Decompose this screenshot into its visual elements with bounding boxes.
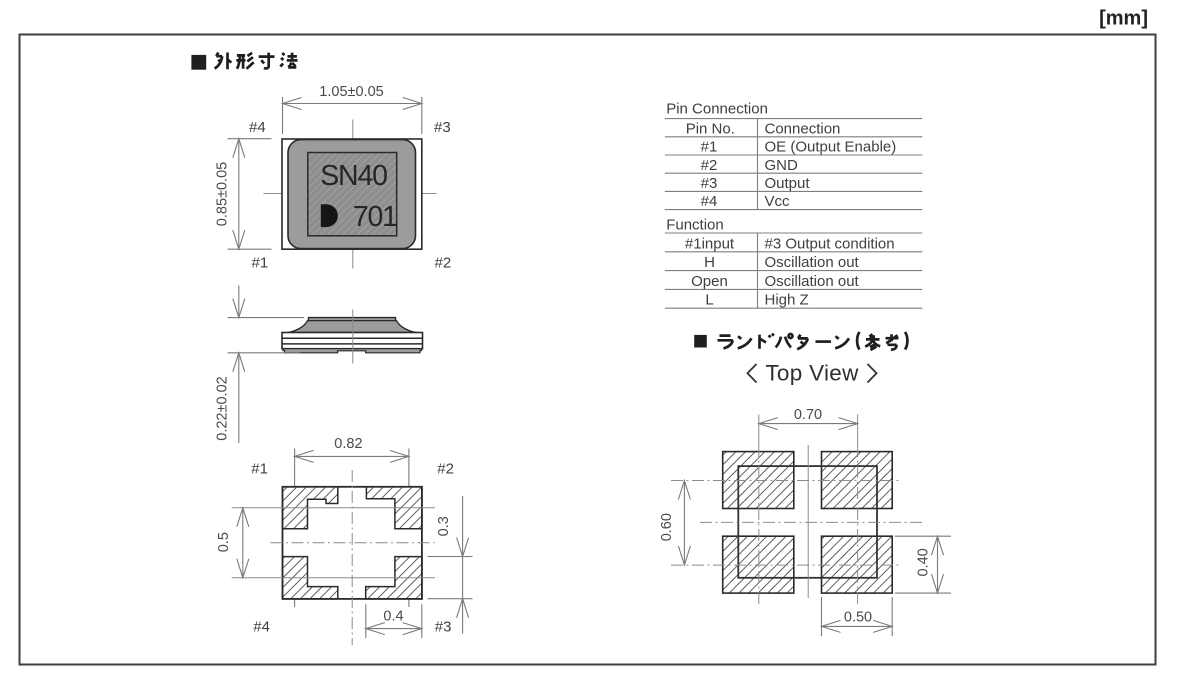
svg-text:#1input: #1input	[685, 235, 735, 252]
svg-text:#1: #1	[252, 255, 269, 272]
svg-text:0.70: 0.70	[794, 407, 822, 423]
svg-text:Oscillation out: Oscillation out	[765, 273, 860, 290]
svg-text:[mm]: [mm]	[1099, 8, 1148, 30]
svg-text:0.22±0.02: 0.22±0.02	[215, 376, 231, 440]
svg-text:0.60: 0.60	[659, 513, 675, 541]
svg-text:#2: #2	[435, 255, 452, 272]
svg-text:Open: Open	[691, 273, 728, 290]
svg-text:#3: #3	[701, 175, 718, 192]
svg-text:1.05±0.05: 1.05±0.05	[319, 84, 383, 100]
svg-text:#2: #2	[701, 157, 718, 174]
svg-text:Top View: Top View	[765, 361, 859, 386]
svg-text:0.85±0.05: 0.85±0.05	[215, 162, 231, 226]
svg-text:#4: #4	[701, 193, 718, 210]
svg-text:0.50: 0.50	[844, 610, 872, 626]
svg-text:SN40: SN40	[320, 160, 387, 192]
svg-text:#2: #2	[437, 460, 454, 477]
svg-text:#4: #4	[249, 119, 266, 136]
svg-text:0.82: 0.82	[334, 436, 362, 452]
svg-text:Connection: Connection	[765, 120, 841, 137]
svg-text:GND: GND	[765, 157, 799, 174]
svg-text:High Z: High Z	[765, 292, 809, 309]
svg-text:OE (Output Enable): OE (Output Enable)	[765, 139, 897, 156]
svg-text:Pin No.: Pin No.	[686, 120, 735, 137]
svg-text:#1: #1	[701, 139, 718, 156]
svg-text:#1: #1	[251, 460, 268, 477]
svg-text:Function: Function	[666, 217, 724, 234]
svg-text:Vcc: Vcc	[765, 193, 791, 210]
svg-text:#3: #3	[435, 618, 452, 635]
svg-text:H: H	[704, 254, 715, 271]
svg-text:701: 701	[353, 201, 397, 233]
svg-text:0.3: 0.3	[436, 516, 452, 536]
svg-text:Pin Connection: Pin Connection	[666, 101, 768, 118]
svg-text:0.40: 0.40	[916, 548, 932, 576]
svg-text:#3 Output condition: #3 Output condition	[765, 235, 895, 252]
svg-text:0.5: 0.5	[216, 532, 232, 552]
svg-text:#4: #4	[253, 618, 270, 635]
svg-text:Oscillation out: Oscillation out	[765, 254, 860, 271]
svg-text:0.4: 0.4	[383, 608, 403, 624]
svg-text:Output: Output	[765, 175, 811, 192]
svg-text:#3: #3	[434, 119, 451, 136]
svg-text:L: L	[705, 292, 713, 309]
